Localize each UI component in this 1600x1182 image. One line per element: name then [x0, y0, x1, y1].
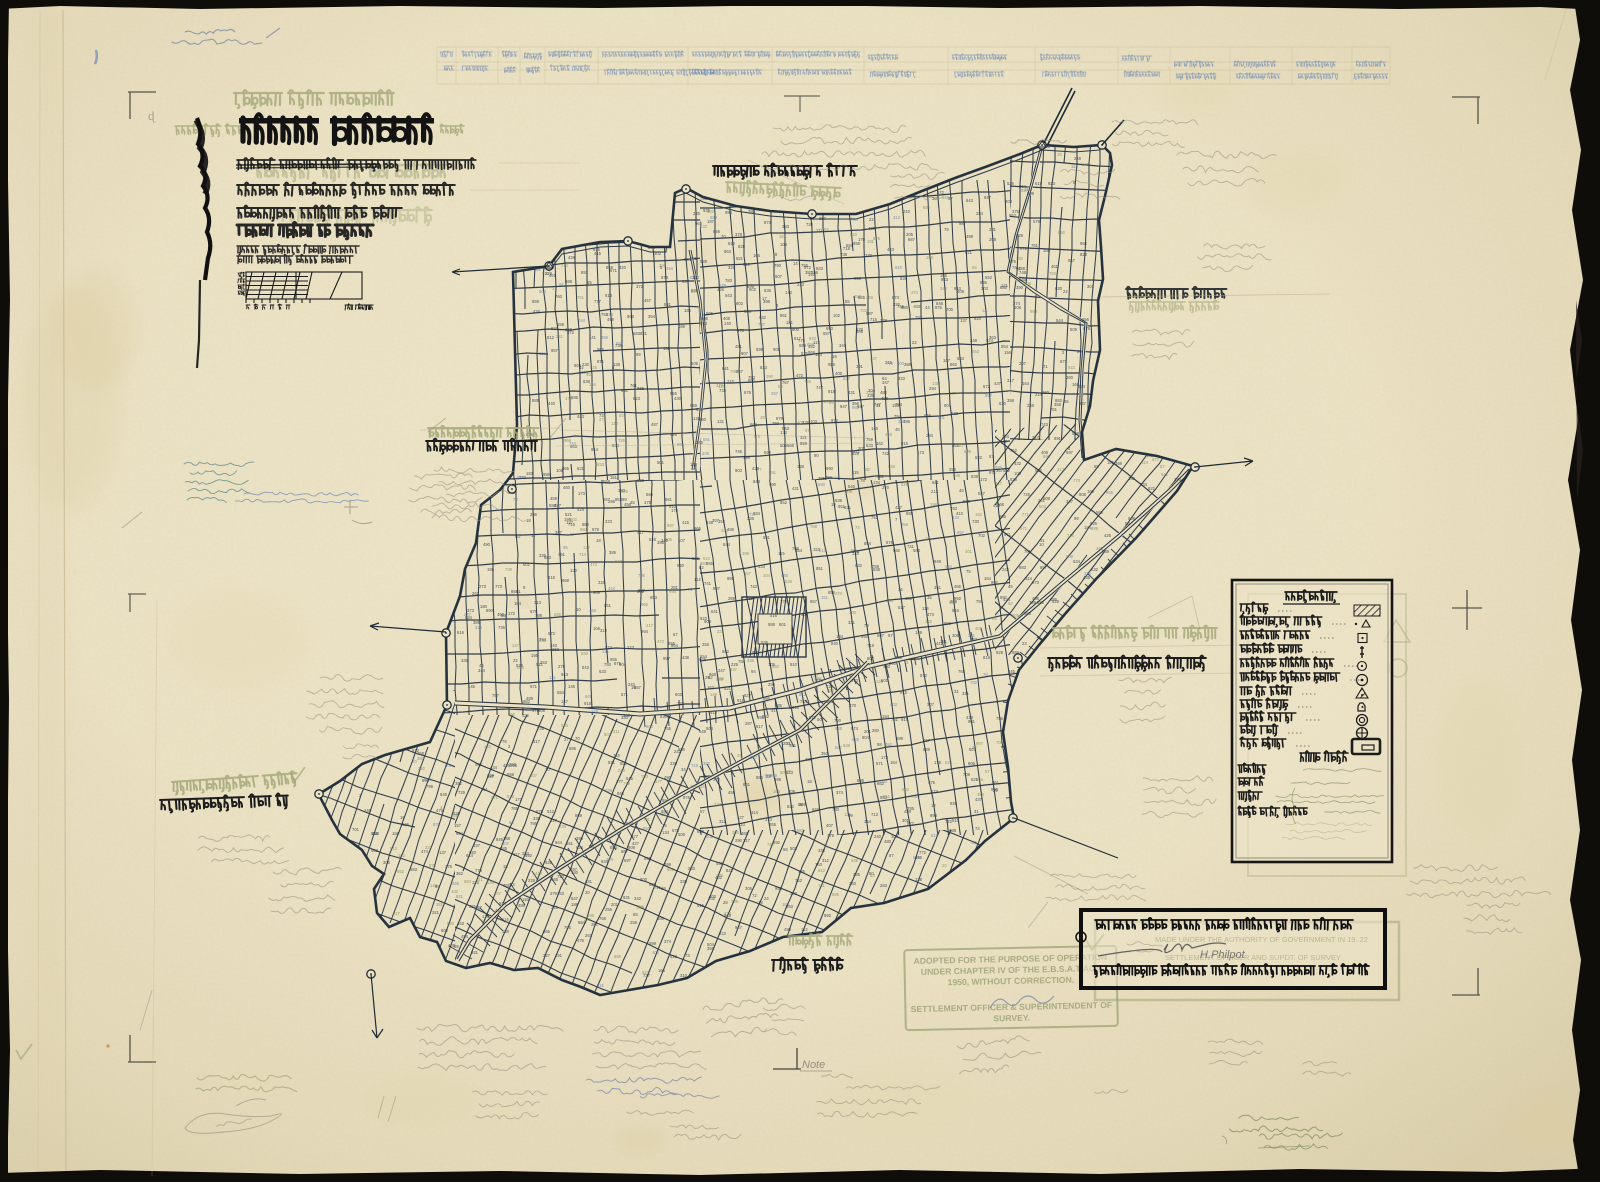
svg-text:70: 70 [721, 234, 726, 239]
svg-text:233: 233 [618, 768, 626, 773]
svg-text:923: 923 [1048, 181, 1056, 186]
svg-text:933: 933 [597, 462, 605, 467]
svg-text:276: 276 [824, 399, 832, 404]
svg-text:480: 480 [664, 775, 672, 780]
svg-text:587: 587 [835, 745, 843, 750]
svg-text:702: 702 [978, 533, 986, 538]
svg-text:10: 10 [1039, 542, 1044, 547]
svg-text:362: 362 [456, 871, 464, 876]
svg-text:729: 729 [458, 790, 466, 795]
svg-text:619: 619 [1035, 181, 1043, 186]
svg-text:363: 363 [989, 335, 997, 340]
svg-text:685: 685 [1024, 611, 1032, 616]
svg-text:620: 620 [999, 401, 1007, 406]
svg-text:789: 789 [716, 873, 724, 878]
svg-text:636: 636 [696, 407, 704, 412]
svg-text:43: 43 [510, 882, 515, 887]
svg-text:19: 19 [503, 864, 508, 869]
svg-text:301: 301 [1087, 284, 1095, 289]
svg-text:474: 474 [927, 612, 935, 617]
svg-text:230: 230 [670, 761, 678, 766]
svg-text:646: 646 [1082, 162, 1090, 167]
svg-text:55: 55 [587, 280, 592, 285]
svg-text:536: 536 [583, 379, 591, 384]
svg-text:764: 764 [636, 904, 644, 909]
svg-text:18: 18 [807, 779, 812, 784]
svg-text:662: 662 [371, 848, 379, 853]
svg-text:149: 149 [710, 692, 718, 697]
svg-text:687: 687 [908, 237, 916, 242]
svg-text:759: 759 [825, 475, 833, 480]
svg-text:320: 320 [619, 265, 627, 270]
svg-text:589: 589 [1072, 431, 1080, 436]
svg-text:570: 570 [920, 673, 928, 678]
svg-text:613: 613 [605, 293, 613, 298]
svg-text:380: 380 [417, 756, 425, 761]
svg-text:43: 43 [569, 532, 574, 537]
svg-text:241: 241 [1038, 498, 1046, 503]
svg-text:177: 177 [616, 779, 624, 784]
svg-text:913: 913 [700, 321, 708, 326]
svg-text:557: 557 [823, 331, 831, 336]
svg-text:928: 928 [545, 860, 553, 865]
svg-text:934: 934 [945, 564, 953, 569]
svg-text:526: 526 [402, 822, 410, 827]
svg-text:427: 427 [895, 505, 903, 510]
svg-text:408: 408 [702, 451, 710, 456]
svg-text:432: 432 [1014, 461, 1022, 466]
svg-text:847: 847 [736, 369, 744, 374]
svg-text:821: 821 [597, 983, 605, 988]
svg-text:398: 398 [763, 299, 771, 304]
svg-text:65: 65 [1094, 464, 1099, 469]
svg-text:718: 718 [843, 246, 851, 251]
svg-text:685: 685 [923, 205, 931, 210]
svg-text:862: 862 [950, 362, 958, 367]
svg-text:491: 491 [558, 552, 566, 557]
svg-text:571: 571 [876, 761, 884, 766]
svg-text:336: 336 [533, 816, 541, 821]
svg-text:709: 709 [963, 772, 971, 777]
svg-text:72: 72 [752, 893, 757, 898]
svg-text:195: 195 [1107, 460, 1115, 465]
svg-text:37: 37 [582, 851, 587, 856]
svg-text:606: 606 [706, 311, 714, 316]
svg-text:188: 188 [503, 836, 511, 841]
svg-text:788: 788 [810, 524, 818, 529]
svg-text:293: 293 [783, 741, 791, 746]
svg-text:173: 173 [917, 450, 925, 455]
svg-text:960: 960 [641, 602, 649, 607]
svg-text:695: 695 [571, 395, 579, 400]
svg-text:677: 677 [631, 834, 639, 839]
svg-text:998: 998 [930, 813, 938, 818]
svg-text:678: 678 [661, 275, 669, 280]
svg-text:695: 695 [915, 855, 923, 860]
svg-text:403: 403 [975, 626, 983, 631]
svg-text:913: 913 [710, 710, 718, 715]
svg-text:507: 507 [877, 633, 885, 638]
svg-text:795: 795 [638, 573, 646, 578]
svg-text:765: 765 [970, 840, 978, 845]
svg-text:338: 338 [818, 848, 826, 853]
svg-text:241: 241 [556, 334, 564, 339]
svg-text:986: 986 [543, 472, 551, 477]
svg-text:739: 739 [731, 899, 739, 904]
svg-text:373: 373 [467, 608, 475, 613]
svg-text:857: 857 [1040, 565, 1048, 570]
svg-text:374: 374 [836, 790, 844, 795]
svg-text:959: 959 [775, 886, 783, 891]
svg-text:153: 153 [557, 891, 565, 896]
svg-text:662: 662 [667, 867, 675, 872]
svg-text:941: 941 [932, 480, 940, 485]
svg-text:431: 431 [848, 390, 856, 395]
svg-text:843: 843 [582, 665, 590, 670]
svg-text:967: 967 [621, 849, 629, 854]
svg-text:440: 440 [548, 401, 556, 406]
svg-text:722: 722 [677, 701, 685, 706]
svg-text:589: 589 [896, 736, 904, 741]
svg-text:544: 544 [626, 821, 634, 826]
svg-text:827: 827 [691, 289, 699, 294]
svg-text:709: 709 [505, 567, 513, 572]
svg-text:970: 970 [1032, 580, 1040, 585]
svg-text:99: 99 [636, 352, 641, 357]
svg-text:549: 549 [699, 729, 707, 734]
svg-text:868: 868 [627, 314, 635, 319]
svg-text:580: 580 [549, 503, 557, 508]
svg-text:503: 503 [902, 787, 910, 792]
svg-text:571: 571 [530, 684, 538, 689]
svg-text:993: 993 [1030, 309, 1038, 314]
svg-text:997: 997 [616, 341, 624, 346]
svg-text:792: 792 [970, 680, 978, 685]
svg-text:358: 358 [1007, 398, 1015, 403]
svg-text:274: 274 [911, 290, 919, 295]
svg-text:845: 845 [561, 723, 569, 728]
svg-text:23: 23 [1022, 641, 1027, 646]
svg-text:34: 34 [681, 767, 686, 772]
svg-text:821: 821 [965, 250, 973, 255]
svg-text:504: 504 [706, 726, 714, 731]
svg-text:526: 526 [649, 537, 657, 542]
svg-text:947: 947 [735, 925, 743, 930]
svg-text:415: 415 [594, 251, 602, 256]
svg-text:965: 965 [597, 347, 605, 352]
svg-text:159: 159 [892, 403, 900, 408]
svg-text:812: 812 [728, 241, 736, 246]
svg-text:71: 71 [1043, 364, 1048, 369]
svg-text:132: 132 [484, 744, 492, 749]
svg-text:598: 598 [756, 347, 764, 352]
svg-text:699: 699 [964, 449, 972, 454]
svg-text:766: 766 [804, 379, 812, 384]
svg-text:883: 883 [1019, 565, 1027, 570]
svg-text:581: 581 [703, 437, 711, 442]
svg-text:879: 879 [592, 527, 600, 532]
svg-text:367: 367 [996, 468, 1004, 473]
svg-text:141: 141 [818, 883, 826, 888]
svg-text:103: 103 [891, 834, 899, 839]
svg-text:450: 450 [913, 304, 921, 309]
svg-text:475: 475 [436, 808, 444, 813]
svg-text:916: 916 [737, 698, 745, 703]
svg-text:89: 89 [435, 884, 440, 889]
svg-text:507: 507 [969, 747, 977, 752]
svg-text:79: 79 [864, 623, 869, 628]
svg-text:568: 568 [507, 772, 515, 777]
svg-text:931: 931 [608, 760, 616, 765]
svg-text:677: 677 [1152, 457, 1160, 462]
svg-text:310: 310 [680, 973, 688, 978]
svg-text:634: 634 [1073, 559, 1081, 564]
svg-text:191: 191 [940, 639, 948, 644]
svg-text:179: 179 [858, 237, 866, 242]
svg-text:946: 946 [713, 229, 721, 234]
svg-text:385: 385 [609, 550, 617, 555]
svg-text:163: 163 [779, 234, 787, 239]
svg-text:283: 283 [688, 866, 696, 871]
svg-text:217: 217 [743, 838, 751, 843]
svg-text:936: 936 [950, 801, 958, 806]
svg-text:553: 553 [972, 349, 980, 354]
svg-text:112: 112 [801, 927, 808, 932]
svg-text:107: 107 [678, 538, 686, 543]
svg-text:547: 547 [571, 896, 579, 901]
svg-text:86: 86 [972, 265, 977, 270]
svg-text:24: 24 [764, 896, 769, 901]
svg-text:765: 765 [511, 806, 519, 811]
svg-text:812: 812 [547, 335, 555, 340]
svg-text:780: 780 [748, 209, 756, 214]
svg-text:899: 899 [944, 621, 952, 626]
svg-text:233: 233 [797, 282, 805, 287]
svg-text:856: 856 [901, 522, 909, 527]
svg-text:949: 949 [851, 858, 859, 863]
svg-text:821: 821 [736, 256, 744, 261]
svg-text:460: 460 [563, 485, 571, 490]
svg-text:622: 622 [1148, 486, 1156, 491]
svg-text:18: 18 [526, 518, 531, 523]
svg-text:240: 240 [661, 538, 669, 543]
svg-text:508: 508 [538, 708, 546, 713]
svg-text:60: 60 [817, 717, 822, 722]
svg-text:761: 761 [1050, 407, 1058, 412]
svg-text:259: 259 [630, 920, 638, 925]
svg-text:55: 55 [845, 299, 850, 304]
svg-text:884: 884 [610, 845, 618, 850]
svg-text:860: 860 [508, 712, 516, 717]
svg-text:440: 440 [495, 908, 503, 913]
svg-text:390: 390 [766, 374, 774, 379]
svg-text:H.Philpot: H.Philpot [1200, 949, 1246, 961]
svg-text:387: 387 [970, 637, 978, 642]
svg-text:758: 758 [417, 751, 425, 756]
svg-text:813: 813 [760, 365, 768, 370]
svg-text:965: 965 [637, 386, 645, 391]
svg-text:915: 915 [900, 690, 908, 695]
svg-text:317: 317 [1007, 378, 1015, 383]
svg-text:880: 880 [678, 747, 686, 752]
svg-text:430: 430 [674, 396, 682, 401]
svg-text:819: 819 [983, 655, 991, 660]
svg-text:41: 41 [771, 708, 776, 713]
svg-text:957: 957 [957, 530, 965, 535]
svg-text:327: 327 [543, 953, 551, 958]
svg-text:585: 585 [500, 846, 508, 851]
svg-text:185: 185 [684, 308, 692, 313]
svg-text:992: 992 [954, 596, 962, 601]
svg-text:847: 847 [984, 195, 992, 200]
svg-text:310: 310 [743, 262, 751, 267]
svg-text:385: 385 [886, 598, 894, 603]
svg-text:25: 25 [1077, 349, 1082, 354]
svg-text:294: 294 [929, 386, 937, 391]
svg-text:345: 345 [1008, 669, 1016, 674]
svg-text:592: 592 [772, 664, 780, 669]
svg-text:141: 141 [589, 335, 597, 340]
svg-text:990: 990 [991, 787, 999, 792]
svg-text:713: 713 [871, 812, 879, 817]
svg-text:223: 223 [627, 645, 635, 650]
svg-text:585: 585 [1096, 510, 1104, 515]
svg-text:492: 492 [885, 742, 893, 747]
svg-text:922: 922 [1068, 365, 1076, 370]
svg-text:29: 29 [661, 886, 666, 891]
svg-text:247: 247 [718, 668, 726, 673]
svg-text:344: 344 [478, 668, 486, 673]
svg-text:589: 589 [963, 499, 971, 504]
svg-text:224: 224 [522, 851, 530, 856]
svg-text:744: 744 [800, 699, 808, 704]
svg-text:280: 280 [872, 728, 880, 733]
svg-text:469: 469 [1115, 461, 1123, 466]
svg-text:985: 985 [725, 210, 733, 215]
svg-text:908: 908 [1079, 492, 1087, 497]
svg-text:315: 315 [551, 905, 559, 910]
svg-text:387: 387 [555, 530, 563, 535]
svg-text:434: 434 [490, 765, 498, 770]
svg-text:402: 402 [706, 834, 714, 839]
svg-text:628: 628 [576, 845, 584, 850]
svg-text:885: 885 [621, 489, 629, 494]
svg-text:94: 94 [559, 282, 564, 287]
svg-text:972: 972 [809, 715, 817, 720]
svg-text:501: 501 [881, 678, 889, 683]
svg-text:12: 12 [931, 803, 936, 808]
svg-text:103: 103 [810, 419, 818, 424]
svg-text:393: 393 [790, 891, 798, 896]
svg-text:57: 57 [989, 454, 994, 459]
svg-text:659: 659 [614, 954, 622, 959]
svg-text:164: 164 [890, 760, 898, 765]
svg-text:633: 633 [599, 669, 607, 674]
svg-text:616: 616 [457, 630, 465, 635]
svg-text:744: 744 [851, 217, 859, 222]
svg-text:222: 222 [717, 629, 725, 634]
svg-text:394: 394 [648, 314, 656, 319]
svg-text:151: 151 [821, 595, 829, 600]
svg-text:610: 610 [850, 232, 858, 237]
svg-text:773: 773 [495, 584, 503, 589]
svg-text:409: 409 [788, 789, 796, 794]
svg-text:308: 308 [801, 612, 809, 617]
svg-text:688: 688 [949, 828, 957, 833]
svg-text:424: 424 [1141, 460, 1149, 465]
svg-text:18: 18 [596, 538, 601, 543]
svg-text:599: 599 [747, 284, 755, 289]
svg-text:11: 11 [531, 533, 536, 538]
svg-text:357: 357 [771, 391, 779, 396]
svg-text:45: 45 [895, 427, 900, 432]
svg-text:104: 104 [763, 573, 771, 578]
svg-text:262: 262 [472, 591, 480, 596]
svg-text:607: 607 [775, 274, 783, 279]
svg-text:791: 791 [976, 599, 984, 604]
svg-text:306: 306 [952, 633, 960, 638]
svg-text:284: 284 [926, 433, 934, 438]
svg-text:572: 572 [937, 190, 945, 195]
svg-text:296: 296 [811, 270, 819, 275]
svg-text:582: 582 [722, 649, 730, 654]
svg-text:536: 536 [761, 640, 769, 645]
svg-text:182: 182 [692, 275, 700, 280]
svg-text:423: 423 [887, 247, 895, 252]
svg-text:869: 869 [575, 813, 583, 818]
svg-text:330: 330 [680, 879, 688, 884]
svg-text:169: 169 [1087, 489, 1095, 494]
svg-text:620: 620 [1055, 286, 1063, 291]
svg-text:779: 779 [623, 781, 631, 786]
svg-text:976: 976 [683, 795, 691, 800]
svg-text:333: 333 [707, 209, 715, 214]
svg-text:599: 599 [692, 556, 700, 561]
svg-text:696: 696 [587, 913, 595, 918]
svg-text:555: 555 [906, 511, 914, 516]
svg-text:987: 987 [667, 523, 675, 528]
svg-text:760: 760 [555, 294, 563, 299]
svg-text:264: 264 [1002, 434, 1010, 439]
svg-text:512: 512 [1003, 468, 1011, 473]
svg-text:960: 960 [889, 661, 897, 666]
svg-text:869: 869 [808, 350, 816, 355]
svg-text:276: 276 [690, 784, 698, 789]
svg-text:532: 532 [855, 563, 863, 568]
svg-text:982: 982 [752, 650, 760, 655]
svg-text:203: 203 [898, 419, 906, 424]
svg-text:313: 313 [534, 600, 542, 605]
svg-text:857: 857 [810, 599, 818, 604]
svg-text:240: 240 [874, 834, 882, 839]
svg-text:810: 810 [954, 286, 962, 291]
svg-text:899: 899 [1091, 526, 1099, 531]
svg-text:138: 138 [797, 464, 805, 469]
svg-text:215: 215 [727, 379, 735, 384]
svg-text:970: 970 [737, 328, 745, 333]
svg-text:15: 15 [1057, 152, 1062, 157]
svg-text:127: 127 [737, 815, 745, 820]
svg-text:592: 592 [824, 913, 832, 918]
svg-text:655: 655 [1106, 490, 1114, 495]
svg-text:226: 226 [528, 878, 536, 883]
svg-text:884: 884 [511, 589, 519, 594]
svg-text:153: 153 [813, 547, 821, 552]
svg-text:735: 735 [537, 726, 545, 731]
svg-text:194: 194 [836, 634, 844, 639]
svg-text:638: 638 [816, 678, 824, 683]
svg-text:94: 94 [509, 820, 514, 825]
